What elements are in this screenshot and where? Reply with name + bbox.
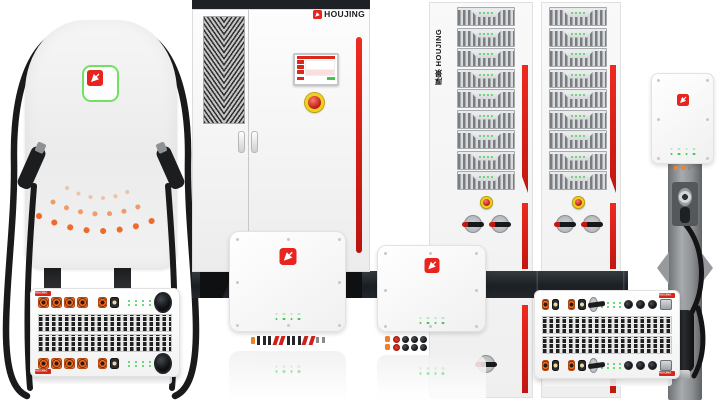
terminal-row [229, 334, 346, 346]
module-led-panel [563, 72, 593, 79]
dc-connector-orange [98, 297, 107, 308]
dc-output-connectors [38, 297, 88, 308]
door-handle-left[interactable] [238, 131, 245, 153]
compact-wallbox [651, 73, 714, 164]
module-led-panel [563, 10, 593, 17]
cabinet-top-strip [192, 0, 370, 9]
rack-emergency-stop-lower[interactable] [481, 197, 492, 208]
module-led-panel [563, 31, 593, 38]
rectifier-module-mirrored [35, 334, 175, 374]
rotary-knob[interactable] [589, 297, 598, 312]
rack-red-stripe [522, 203, 529, 269]
emergency-stop-button[interactable] [305, 93, 324, 112]
rotary-switch[interactable] [491, 215, 509, 233]
power-module [457, 110, 515, 129]
ventilation-grille [203, 16, 245, 124]
ventilation-slots [38, 314, 172, 332]
power-module [457, 151, 515, 170]
dc-connector-black [552, 299, 559, 310]
dc-connector-orange [77, 358, 88, 369]
dc-output-connectors [38, 358, 88, 369]
connector-row [35, 292, 175, 312]
power-rack-tower-left: 厚景 HOUJING [429, 2, 533, 398]
gun-connector-face [678, 188, 692, 206]
rack-red-stripe [522, 65, 529, 193]
gun-left [16, 140, 50, 191]
power-module [549, 69, 607, 88]
dc-connector-orange [51, 297, 62, 308]
rack-modules [549, 7, 607, 190]
brand-badge: HOUJING [659, 371, 675, 376]
status-leds-reflection [419, 367, 444, 370]
gun-holster [672, 182, 698, 226]
dc-connector-orange [64, 297, 75, 308]
dc-connector-orange [542, 360, 549, 371]
power-module [457, 89, 515, 108]
module-chassis: HOUJING [30, 288, 180, 377]
module-led-panel [563, 133, 593, 140]
module-led-panel [563, 154, 593, 161]
dc-connector-black [110, 297, 119, 308]
power-module [457, 130, 515, 149]
rack-modules [457, 7, 515, 190]
rack-red-stripe [522, 305, 529, 393]
screws [657, 79, 660, 82]
hmi-header [297, 56, 335, 59]
dc-connector-black [578, 299, 585, 310]
round-connector [636, 361, 645, 370]
rectifier-module [539, 294, 675, 334]
dc-connector-orange [568, 360, 575, 371]
module-led-panel [471, 10, 501, 17]
hmi-button-red [297, 77, 304, 80]
rectifier-module [35, 292, 175, 332]
rack-emergency-stop-lower[interactable] [573, 197, 584, 208]
power-module [457, 28, 515, 47]
module-led-panel [471, 92, 501, 99]
floor-reflection [377, 355, 486, 400]
status-leds [275, 313, 300, 316]
brand-logo-icon [279, 248, 296, 265]
dc-connector-orange [77, 297, 88, 308]
terminal-cluster [385, 334, 427, 352]
dc-connector-orange [568, 299, 575, 310]
round-ac-connector [154, 353, 172, 374]
rack-side-brand-label: 厚景 HOUJING [433, 5, 444, 85]
power-module-stack-right: HOUJING [534, 290, 680, 386]
status-leds-reflection [275, 365, 300, 368]
module-stack [457, 7, 515, 192]
dc-connector-orange [38, 358, 49, 369]
connector-row [539, 355, 675, 375]
brand-badge: HOUJING [35, 291, 51, 296]
cabinet-brand: HOUJING [313, 9, 365, 19]
gun-grip [680, 207, 690, 223]
brand-badge: HOUJING [35, 369, 51, 374]
ventilation-slots [38, 334, 172, 352]
hmi-menu [297, 60, 304, 76]
power-module [549, 110, 607, 129]
module-led-panel [471, 51, 501, 58]
power-module [457, 7, 515, 26]
round-ac-connector [154, 292, 172, 313]
status-leds [670, 148, 695, 151]
dc-connector-black [110, 358, 119, 369]
brand-logo-icon [313, 10, 322, 19]
power-module [457, 69, 515, 88]
ventilation-slots [542, 336, 672, 354]
terminal-row [651, 165, 714, 171]
product-showcase: HOUJING 厚景 HOUJING [0, 0, 719, 400]
comm-port [660, 299, 672, 310]
rotary-switch[interactable] [556, 215, 574, 233]
rack-red-stripe [610, 203, 617, 269]
connector-row [539, 294, 675, 314]
comm-port [660, 360, 672, 371]
round-connector [624, 300, 633, 309]
module-led-panel [563, 92, 593, 99]
power-module [549, 151, 607, 170]
brand-logo-icon [677, 94, 689, 106]
module-base-reflection [38, 377, 172, 384]
rotary-switch[interactable] [583, 215, 601, 233]
status-leds [419, 317, 444, 320]
power-module [549, 89, 607, 108]
door-handle-right[interactable] [251, 131, 258, 153]
power-module [457, 48, 515, 67]
module-led-panel [563, 113, 593, 120]
hmi-button-green [327, 77, 335, 80]
brand-wordmark: HOUJING [324, 9, 365, 19]
brand-logo-icon [424, 258, 439, 273]
module-led-panel [471, 31, 501, 38]
module-base-reflection [542, 379, 672, 386]
rectifier-module-mirrored [539, 336, 675, 376]
power-module-stack-left: HOUJING [30, 288, 180, 384]
dc-breaker-switches [549, 215, 607, 233]
module-led-panel [471, 72, 501, 79]
power-module [549, 130, 607, 149]
round-connector [624, 361, 633, 370]
power-module [549, 28, 607, 47]
power-module [549, 171, 607, 190]
wallbox-right [377, 245, 486, 332]
screws [236, 238, 239, 241]
dc-connector-black [578, 360, 585, 371]
module-chassis: HOUJING [534, 290, 680, 379]
module-led-panel [471, 154, 501, 161]
power-module [549, 48, 607, 67]
connector-row [35, 353, 175, 373]
brand-badge: HOUJING [659, 293, 675, 298]
round-connector [648, 361, 657, 370]
module-led-panel [563, 174, 593, 181]
module-stack [549, 7, 607, 192]
dc-connector-black [552, 360, 559, 371]
round-connector-cluster [601, 360, 672, 371]
dc-connector-orange [542, 299, 549, 310]
gun-right [153, 140, 187, 191]
module-led-panel [471, 174, 501, 181]
module-status-leds [128, 300, 151, 302]
round-connector-cluster [601, 299, 672, 310]
hmi-touchscreen[interactable] [293, 53, 339, 86]
rack-red-stripe [610, 65, 617, 193]
module-led-panel [471, 113, 501, 120]
power-module [457, 171, 515, 190]
rotary-knob[interactable] [589, 358, 598, 373]
dc-connector-orange [51, 358, 62, 369]
hmi-chart [305, 60, 335, 76]
screws [384, 252, 387, 255]
dc-connector-orange [38, 297, 49, 308]
power-module [549, 7, 607, 26]
dc-connector-orange [98, 358, 107, 369]
floor-reflection [229, 351, 346, 400]
round-connector [648, 300, 657, 309]
ventilation-slots [542, 316, 672, 334]
dc-breaker-switches [457, 215, 515, 233]
wallbox-center [229, 231, 346, 332]
dc-connector-orange [64, 358, 75, 369]
red-accent-stripe [356, 37, 362, 253]
module-status-leds [128, 361, 151, 363]
module-led-panel [563, 51, 593, 58]
round-connector [636, 300, 645, 309]
module-led-panel [471, 133, 501, 140]
rotary-switch[interactable] [464, 215, 482, 233]
